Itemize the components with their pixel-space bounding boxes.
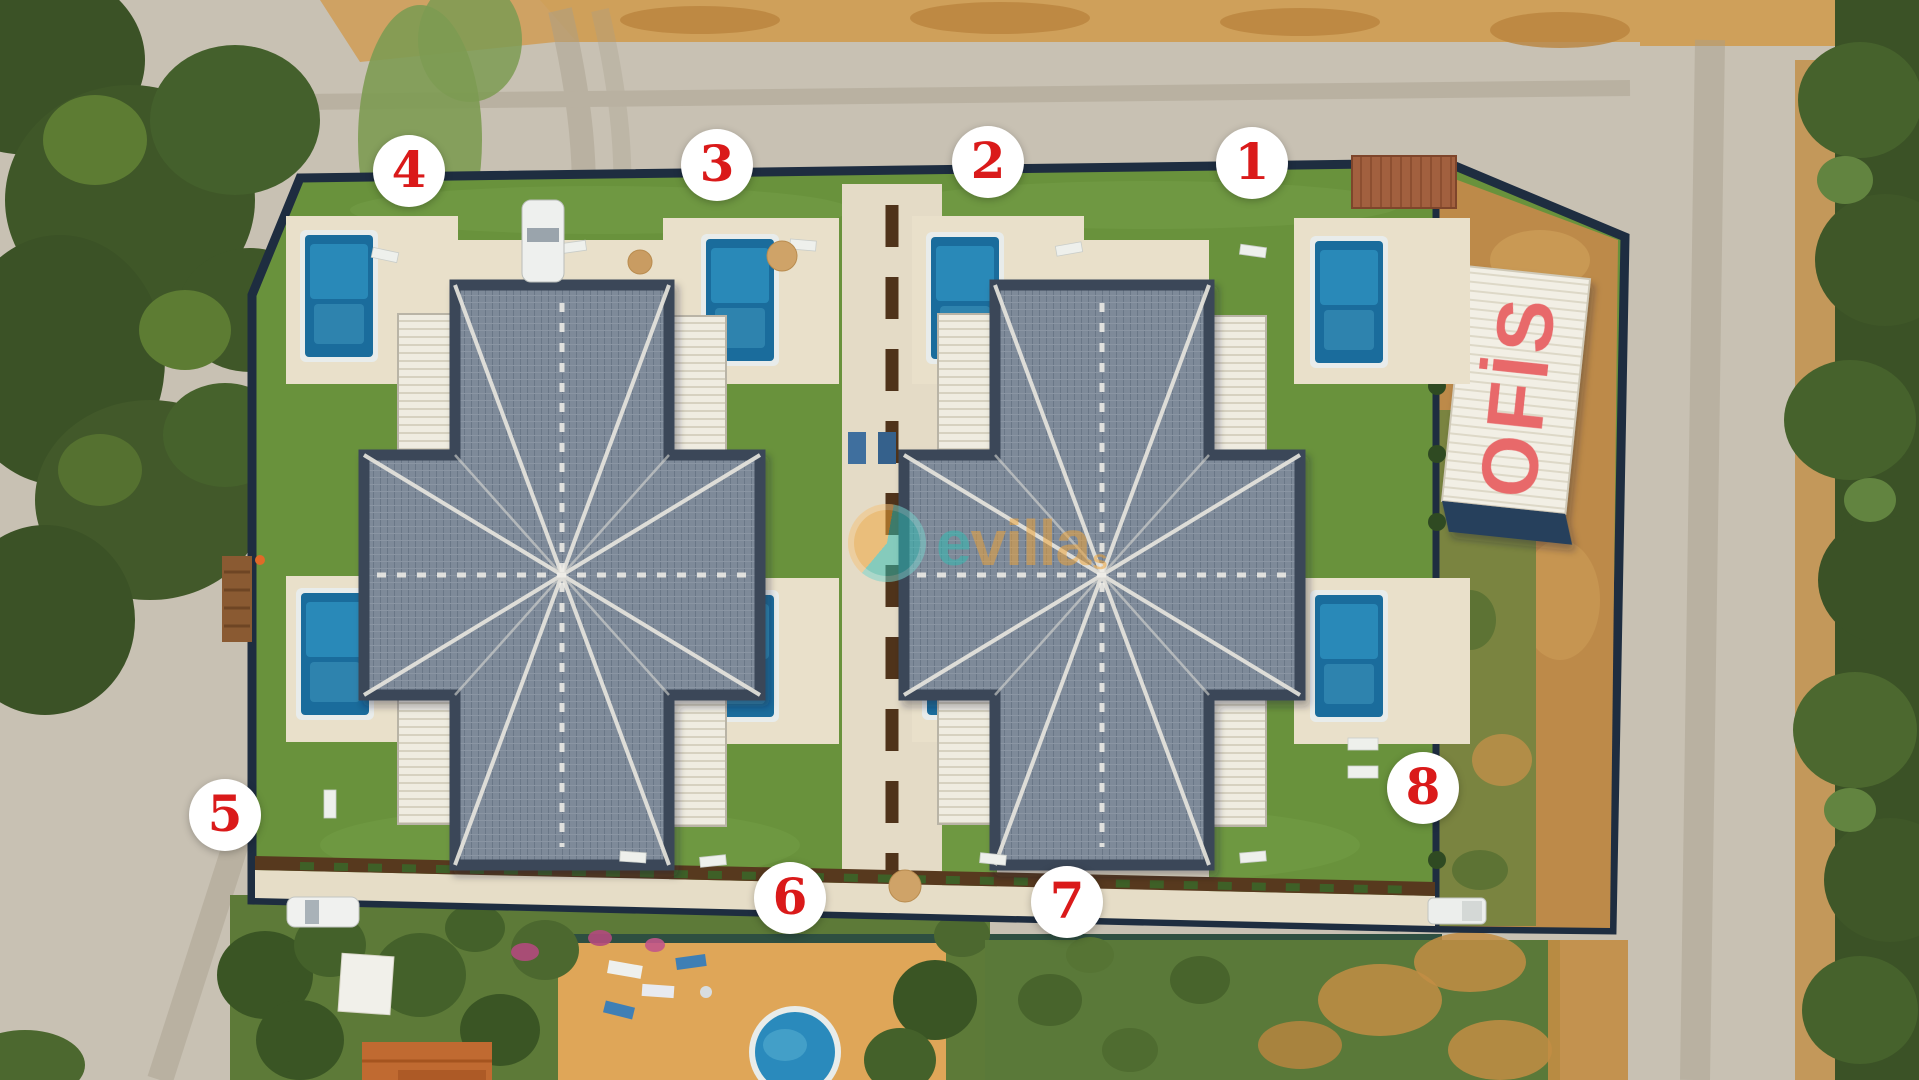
unit-marker-1: 1 (1216, 127, 1288, 199)
white-van (522, 200, 564, 282)
unit-marker-6-label: 6 (773, 872, 808, 922)
unit-marker-5: 5 (189, 779, 261, 851)
unit-marker-8: 8 (1387, 752, 1459, 824)
white-pickup (1428, 898, 1486, 924)
parasol (767, 241, 797, 271)
white-canopy-tent (338, 953, 394, 1014)
unit-marker-3-label: 3 (700, 139, 735, 189)
unit-marker-2-label: 2 (971, 136, 1006, 186)
unit-marker-2: 2 (952, 126, 1024, 198)
white-car (287, 897, 359, 927)
unit-marker-1-label: 1 (1235, 137, 1270, 187)
orange-roof-house (362, 1042, 492, 1080)
unit-marker-4-label: 4 (392, 145, 427, 195)
right-edge-trees (1784, 0, 1919, 1080)
unit-marker-6: 6 (754, 862, 826, 934)
carport-roof (1352, 156, 1456, 208)
pool-unit-4 (300, 230, 378, 362)
parasol (628, 250, 652, 274)
parasol (889, 870, 921, 902)
aerial-site-photo: OFİS (0, 0, 1919, 1080)
unit-marker-5-label: 5 (208, 789, 243, 839)
pool-unit-1 (1310, 236, 1388, 368)
pool-unit-8 (1310, 590, 1388, 722)
unit-marker-7: 7 (1031, 866, 1103, 938)
bottom-right-field (985, 932, 1628, 1080)
unit-marker-7-label: 7 (1050, 876, 1085, 926)
unit-marker-3: 3 (681, 129, 753, 201)
unit-marker-4: 4 (373, 135, 445, 207)
unit-marker-8-label: 8 (1406, 762, 1441, 812)
